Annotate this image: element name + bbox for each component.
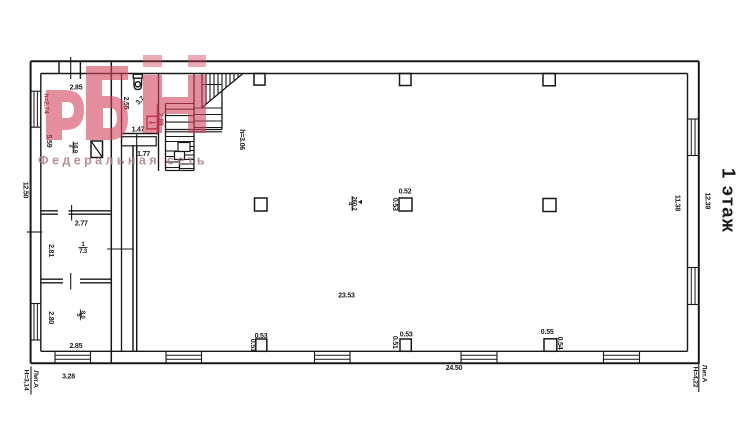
svg-text:2.80: 2.80 [47, 311, 54, 324]
svg-text:2.81: 2.81 [47, 244, 54, 257]
svg-text:0.52: 0.52 [399, 188, 412, 195]
svg-text:1.47: 1.47 [132, 126, 145, 133]
svg-text:260.2: 260.2 [351, 196, 357, 211]
svg-text:H=3,14: H=3,14 [23, 370, 30, 391]
svg-text:12.50: 12.50 [22, 182, 29, 199]
svg-text:23.53: 23.53 [338, 293, 355, 300]
svg-text:0.51: 0.51 [249, 339, 256, 352]
svg-text:1 этаж: 1 этаж [718, 168, 739, 233]
svg-text:3.28: 3.28 [62, 373, 75, 380]
svg-text:24.50: 24.50 [446, 365, 463, 372]
svg-text:Федеральная сеть: Федеральная сеть [38, 154, 208, 168]
svg-text:2.85: 2.85 [69, 343, 82, 350]
svg-text:2.85: 2.85 [70, 85, 83, 92]
svg-text:0.53: 0.53 [400, 331, 413, 338]
svg-text:0.53: 0.53 [391, 198, 398, 211]
svg-text:2.77: 2.77 [75, 221, 88, 228]
svg-text:12.39: 12.39 [704, 193, 711, 210]
svg-text:0.54: 0.54 [556, 337, 563, 350]
svg-text:7.3: 7.3 [79, 249, 88, 255]
svg-text:8.0: 8.0 [79, 311, 85, 320]
svg-text:Лит.А: Лит.А [700, 365, 707, 383]
svg-text:11.38: 11.38 [674, 195, 681, 211]
svg-text:h=3.06: h=3.06 [238, 129, 245, 150]
svg-text:H=4,22: H=4,22 [692, 367, 699, 388]
svg-text:0.51: 0.51 [391, 336, 398, 349]
svg-text:16.9: 16.9 [72, 142, 78, 154]
svg-text:0.55: 0.55 [541, 329, 554, 336]
svg-text:Лит.А: Лит.А [32, 370, 39, 388]
